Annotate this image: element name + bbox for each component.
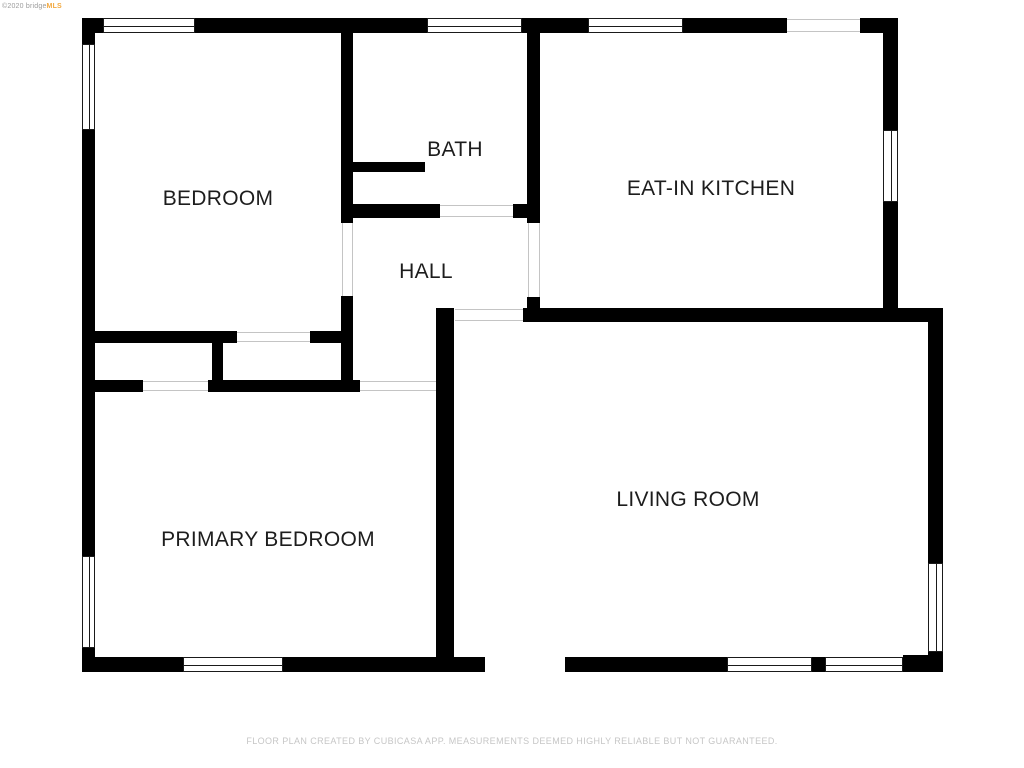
window-symbol-living-bottom-left	[727, 657, 812, 672]
door-opening-primary-bedroom	[360, 381, 436, 391]
door-opening-primary-closet	[143, 381, 208, 391]
wall-bottom-primary-left	[95, 657, 183, 672]
wall-kitchen-right-lower	[883, 202, 898, 322]
watermark-copyright: ©2020 bridge	[2, 3, 47, 10]
window-symbol-living-right	[928, 563, 943, 652]
wall-left-bottom	[82, 648, 95, 672]
door-opening-bedroom	[342, 223, 353, 296]
door-opening-bedroom-closet	[237, 332, 310, 342]
door-opening-kitchen	[528, 223, 540, 297]
wall-kitchen-right-upper	[883, 18, 898, 130]
watermark-brand: MLS	[47, 3, 62, 10]
wall-bath-bottom-left	[341, 204, 440, 218]
door-opening-hall-living	[455, 309, 523, 321]
wall-living-right-upper	[928, 322, 943, 563]
door-opening-kitchen-top	[787, 19, 860, 32]
wall-bath-kitchen-divider	[527, 18, 540, 223]
wall-bedroom-bath-divider	[341, 18, 353, 223]
watermark: ©2020 bridgeMLS	[2, 3, 62, 10]
room-label-primary-bedroom: PRIMARY BEDROOM	[161, 528, 375, 552]
wall-bottom-living-left	[565, 657, 727, 672]
door-opening-bath	[440, 205, 513, 217]
room-label-living-room: LIVING ROOM	[616, 488, 759, 512]
window-symbol-bedroom-left	[82, 44, 95, 130]
wall-closet-divider	[212, 331, 223, 392]
wall-bedroom-hall-divider	[341, 296, 353, 392]
wall-bottom-se-corner	[903, 655, 943, 672]
window-symbol-primary-left	[82, 556, 95, 648]
wall-primary-top-right	[208, 380, 360, 392]
wall-left-middle	[82, 130, 95, 556]
window-symbol-bedroom-top	[103, 18, 195, 33]
room-label-bath: BATH	[427, 138, 483, 162]
room-label-hall: HALL	[399, 260, 453, 284]
wall-primary-top-left	[95, 380, 143, 392]
room-label-bedroom: BEDROOM	[163, 187, 274, 211]
wall-bottom-primary-right	[283, 657, 485, 672]
wall-bath-bottom-right	[513, 204, 540, 218]
window-symbol-kitchen-right	[883, 130, 898, 202]
window-symbol-primary-bottom	[183, 657, 283, 672]
wall-primary-living-divider	[436, 308, 454, 672]
floor-plan-canvas: ©2020 bridgeMLS	[0, 0, 1024, 768]
wall-bottom-living-mid	[812, 657, 825, 672]
wall-top-bedroom-bath	[195, 18, 427, 33]
wall-bedroom-bottom-right	[310, 331, 353, 343]
room-label-eat-in-kitchen: EAT-IN KITCHEN	[627, 177, 795, 201]
wall-living-room-top	[523, 308, 943, 322]
wall-bath-fixture-stub	[352, 162, 425, 172]
footer-disclaimer: FLOOR PLAN CREATED BY CUBICASA APP. MEAS…	[0, 736, 1024, 746]
window-symbol-bath-top	[427, 18, 522, 33]
wall-left-top	[82, 18, 95, 44]
window-symbol-kitchen-top	[588, 18, 683, 33]
wall-top-kitchen	[683, 18, 787, 33]
window-symbol-living-bottom-right	[825, 657, 903, 672]
